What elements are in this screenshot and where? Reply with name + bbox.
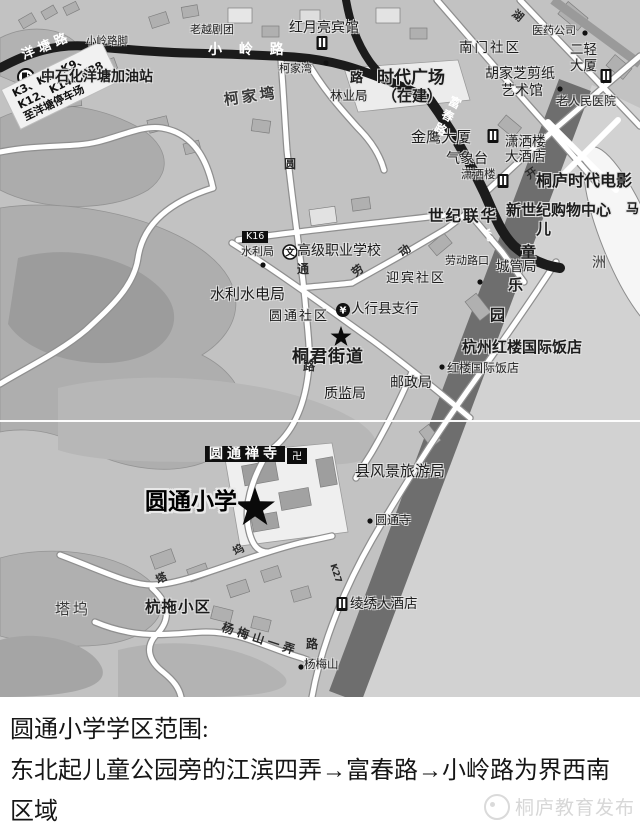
poi-label-shidai-plaza-2: （在建）	[382, 89, 442, 104]
edge-char-ma: 马	[626, 203, 639, 216]
road-label-yangtang-road: 洋 塘 路	[20, 32, 69, 62]
stop-label-xiaosalou: 潇洒楼	[461, 169, 496, 181]
map-area: ¥ 文 卍 K3、K6、K9、 K12、K14、K28 至洋塘停车场	[0, 0, 640, 697]
poi-label-chengguanju: 城管局	[496, 261, 537, 275]
road-char-lu-1: 路	[350, 72, 363, 85]
poi-label-vocational-school: 高级职业学校	[297, 244, 381, 258]
bus-route-k6: K6	[481, 228, 494, 244]
area-label-tawu: 塔坞	[55, 602, 91, 617]
road-char-dong: 动	[397, 243, 413, 259]
poi-label-yuantong-temple-box: 圆通禅寺	[205, 446, 285, 462]
road-label-xiaoling-road: 小 岭 路	[208, 43, 290, 57]
poi-label-new-century-mall: 新世纪购物中心	[506, 203, 611, 218]
road-char-lao: 劳	[350, 263, 366, 279]
road-char-tong: 通	[297, 263, 309, 275]
watermark: 桐庐教育发布	[484, 793, 635, 820]
poi-label-yuantong-school: 圆通小学	[145, 491, 237, 514]
road-char-lu-3: 路	[306, 638, 318, 650]
road-char-yuan: 圆	[284, 158, 296, 170]
poi-label-shidai-plaza: 时代广场	[377, 70, 445, 87]
stop-label-yangmeishan: 杨梅山	[304, 659, 339, 671]
bus-route-box-k16: K16	[242, 231, 268, 243]
poi-label-tonglu-cinema: 桐庐时代电影	[536, 173, 632, 189]
stop-label-shuiliju: 水利局	[241, 246, 274, 257]
stop-label-honglou-hotel: 红楼国际饭店	[447, 362, 519, 374]
poi-label-erqing-tower-2: 大厦	[570, 60, 597, 74]
stop-label-laodonglukou: 劳动路口	[445, 255, 489, 266]
road-char-lu-2: 路	[303, 360, 315, 372]
poi-label-hujiazhi-papercut-1: 胡家芝剪纸	[485, 67, 555, 81]
poi-label-yingbin-community: 迎宾社区	[386, 272, 446, 285]
stop-label-yuantongsi: 圆通寺	[375, 514, 411, 526]
watermark-logo-icon	[484, 794, 510, 820]
stop-label-xiaolinglujiao: 小岭路脚	[86, 36, 128, 47]
poi-label-yuantong-community: 圆通社区	[269, 310, 329, 323]
caption-body: 东北起儿童公园旁的江滨四弄→富春路→小岭路为界西南区域	[0, 751, 620, 833]
area-label-kejiawan: 柯家塆	[223, 85, 279, 107]
poi-label-sinopec-gas-station: 中石化洋塘加油站	[41, 70, 153, 84]
poi-label-old-peoples-hospital: 老人民医院	[556, 95, 616, 107]
bus-route-k27: K27	[327, 563, 342, 584]
poi-label-honglou-hotel: 杭州红楼国际饭店	[462, 340, 582, 355]
poi-label-hujiazhi-papercut-2: 艺术馆	[501, 84, 543, 98]
watermark-text: 桐庐教育发布	[515, 793, 635, 820]
poi-label-hongyueliang-hotel: 红月亮宾馆	[289, 21, 359, 35]
park-char-tong: 童	[521, 245, 536, 260]
poi-label-laoyue-opera: 老越剧团	[190, 24, 234, 35]
caption-title: 圆通小学学区范围:	[0, 697, 620, 751]
poi-label-pharma-company: 医药公司	[532, 25, 576, 36]
poi-label-bank-county-branch: 人行县支行	[351, 303, 419, 317]
map-labels: 洋 塘 路小岭路脚小 岭 路老越剧团红月亮宾馆柯家湾中石化洋塘加油站柯家塆路时代…	[0, 0, 640, 697]
area-label-zhou: 洲	[592, 256, 606, 270]
poi-label-shiji-lianhua: 世纪联华	[428, 209, 498, 225]
road-label-yangmeishan-lane: 杨梅山一弄	[220, 621, 300, 657]
poi-label-hangtuo-estate: 杭拖小区	[145, 600, 211, 616]
poi-label-lingxiu-hotel: 绫绣大酒店	[350, 598, 418, 612]
road-char-ta: 塔	[154, 571, 169, 586]
stop-label-kejiawan: 柯家湾	[279, 63, 312, 74]
poi-label-zhijianju: 质监局	[324, 387, 366, 401]
park-char-le: 乐	[508, 278, 523, 293]
poi-label-nanmen-community: 南门社区	[459, 42, 521, 56]
poi-label-forestry-bureau: 林业局	[330, 90, 368, 103]
poi-label-water-hydro-bureau: 水利水电局	[210, 287, 285, 302]
screenshot-root: ¥ 文 卍 K3、K6、K9、 K12、K14、K28 至洋塘停车场	[0, 0, 640, 834]
poi-label-erqing-tower-1: 二轻	[570, 44, 597, 58]
road-char-hu: 湖	[510, 8, 525, 23]
park-char-yuan: 园	[490, 308, 505, 323]
poi-label-weather-station: 气象台	[446, 152, 488, 166]
poi-label-xiaosalou-hotel-2: 大酒店	[505, 151, 546, 165]
poi-label-xiaosalou-hotel-1: 潇洒楼	[505, 136, 546, 150]
road-char-wu: 坞	[231, 543, 246, 558]
poi-label-youzhengju: 邮政局	[390, 376, 432, 390]
park-char-er: 儿	[536, 222, 551, 237]
poi-label-scenic-tourism-bureau: 县风景旅游局	[355, 464, 445, 479]
